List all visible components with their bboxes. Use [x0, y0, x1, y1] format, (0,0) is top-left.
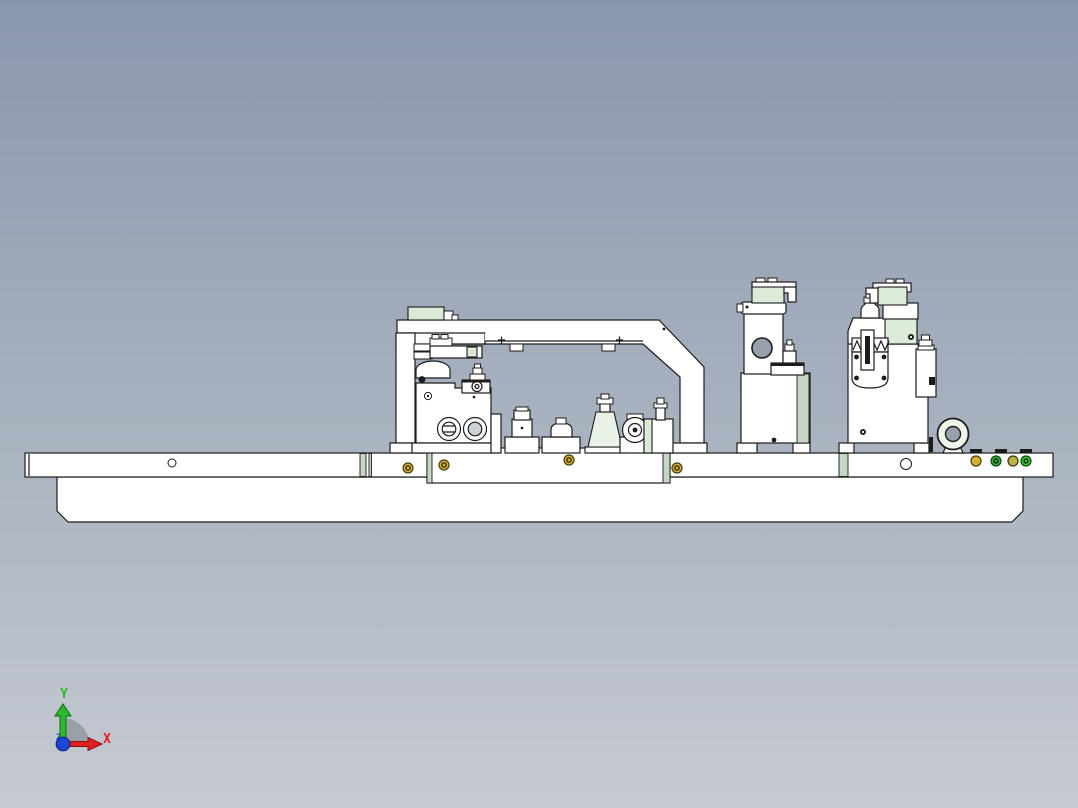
left-clamp-tower[interactable]: [737, 278, 810, 453]
plate-hole: [901, 459, 912, 470]
locator-pedestal[interactable]: [505, 407, 539, 453]
ring-inner: [946, 427, 961, 442]
x-axis-label: X: [103, 732, 111, 747]
side-attachment[interactable]: [916, 335, 936, 397]
origin-sphere: [56, 737, 70, 751]
locator-dome[interactable]: [542, 418, 580, 453]
bore-hole: [438, 418, 461, 441]
model-canvas[interactable]: Z Y X: [0, 0, 1078, 808]
left-fixture-block[interactable]: [412, 335, 496, 454]
base-green-strip: [839, 454, 848, 477]
base-plate[interactable]: [25, 446, 1053, 522]
plate-hole: [168, 459, 176, 467]
toggle-clamp[interactable]: [866, 279, 911, 305]
y-axis-label: Y: [60, 687, 68, 702]
bottle-fitting: [861, 303, 879, 318]
gooseneck-left-column[interactable]: [396, 333, 415, 443]
locator-cone[interactable]: [585, 394, 625, 453]
locator-block[interactable]: [644, 398, 673, 453]
base-green-strip: [360, 454, 366, 477]
lifting-ring[interactable]: [929, 419, 969, 454]
base-lower-plate[interactable]: [57, 477, 1023, 522]
cad-viewport[interactable]: Z Y X: [0, 0, 1078, 808]
status-dot-olive: [1008, 456, 1018, 466]
cylinder-cap: [416, 361, 450, 378]
toggle-clamp[interactable]: [752, 278, 796, 303]
right-clamp-tower[interactable]: [839, 279, 936, 453]
origin-triad: Z Y X: [55, 687, 111, 751]
clamp-mechanism[interactable]: [852, 330, 889, 388]
beam-top-block: [408, 307, 444, 320]
base-green-strip: [369, 454, 372, 477]
status-dot-yellow: [971, 456, 981, 466]
status-dot-green: [991, 456, 1001, 466]
center-locators[interactable]: [491, 394, 673, 453]
tower-bore: [752, 338, 772, 358]
status-dot-bright-green: [1021, 456, 1031, 466]
locator-bar: [491, 414, 501, 453]
